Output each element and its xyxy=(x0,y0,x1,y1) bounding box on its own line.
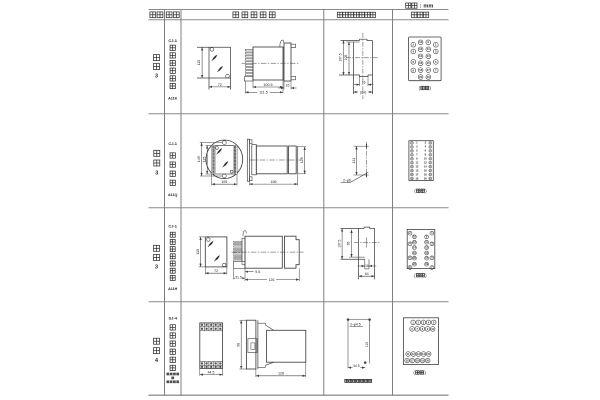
svg-text:CJ-1: CJ-1 xyxy=(168,141,177,146)
svg-text:12: 12 xyxy=(419,47,422,51)
svg-text:3: 3 xyxy=(155,170,158,176)
svg-text:100.5: 100.5 xyxy=(263,83,272,87)
svg-text:64: 64 xyxy=(365,272,369,276)
svg-text:10: 10 xyxy=(419,40,422,44)
svg-text:72: 72 xyxy=(214,269,218,273)
svg-text:16: 16 xyxy=(286,84,290,88)
svg-text:CJ-1: CJ-1 xyxy=(168,223,177,228)
svg-text:16: 16 xyxy=(419,61,422,65)
svg-text:156: 156 xyxy=(271,180,277,184)
svg-text:98: 98 xyxy=(237,343,241,347)
svg-text:128: 128 xyxy=(278,372,284,376)
svg-text:20: 20 xyxy=(419,75,422,79)
svg-text:44.5: 44.5 xyxy=(353,364,360,368)
svg-text:16: 16 xyxy=(362,80,366,84)
svg-text:16: 16 xyxy=(365,264,369,268)
svg-text:φ4.5: φ4.5 xyxy=(354,322,361,326)
svg-text:149: 149 xyxy=(197,156,201,162)
svg-text:19: 19 xyxy=(427,75,430,79)
svg-text:14: 14 xyxy=(419,54,422,58)
svg-text:95: 95 xyxy=(347,242,351,246)
svg-text:3: 3 xyxy=(155,265,158,271)
svg-text:φ6: φ6 xyxy=(347,179,351,183)
svg-text:SJ-4: SJ-4 xyxy=(168,315,177,320)
svg-text:A11Q: A11Q xyxy=(168,193,178,197)
svg-text:4: 4 xyxy=(155,358,158,364)
svg-text:13: 13 xyxy=(427,54,430,58)
svg-text:125: 125 xyxy=(203,157,207,163)
svg-text:131: 131 xyxy=(352,158,356,164)
svg-text:115: 115 xyxy=(196,249,200,255)
svg-text:115: 115 xyxy=(197,60,201,66)
svg-text:110: 110 xyxy=(365,342,369,347)
svg-text:125: 125 xyxy=(300,157,304,163)
svg-text:105: 105 xyxy=(344,55,348,61)
svg-text:17: 17 xyxy=(427,68,430,72)
svg-text:44.5: 44.5 xyxy=(208,370,215,374)
svg-text:9.5: 9.5 xyxy=(255,270,260,274)
svg-text:A11K: A11K xyxy=(168,97,178,101)
svg-text:111.5: 111.5 xyxy=(259,91,268,95)
svg-text:107.5: 107.5 xyxy=(339,53,343,61)
svg-text:CJ-1: CJ-1 xyxy=(168,38,177,43)
svg-text::: : xyxy=(420,4,422,10)
svg-text:126: 126 xyxy=(269,278,275,282)
svg-text:(64): (64) xyxy=(360,90,366,94)
svg-text:15: 15 xyxy=(427,61,430,65)
svg-text:18: 18 xyxy=(419,68,422,72)
svg-text:105: 105 xyxy=(221,180,227,184)
svg-text:3: 3 xyxy=(155,74,158,80)
svg-text:31.5: 31.5 xyxy=(235,275,242,279)
svg-text:72: 72 xyxy=(218,83,222,87)
svg-text:mm: mm xyxy=(423,4,433,10)
svg-text:107.5: 107.5 xyxy=(337,240,341,248)
svg-text:11: 11 xyxy=(427,47,430,51)
svg-text:A11H: A11H xyxy=(168,287,178,291)
